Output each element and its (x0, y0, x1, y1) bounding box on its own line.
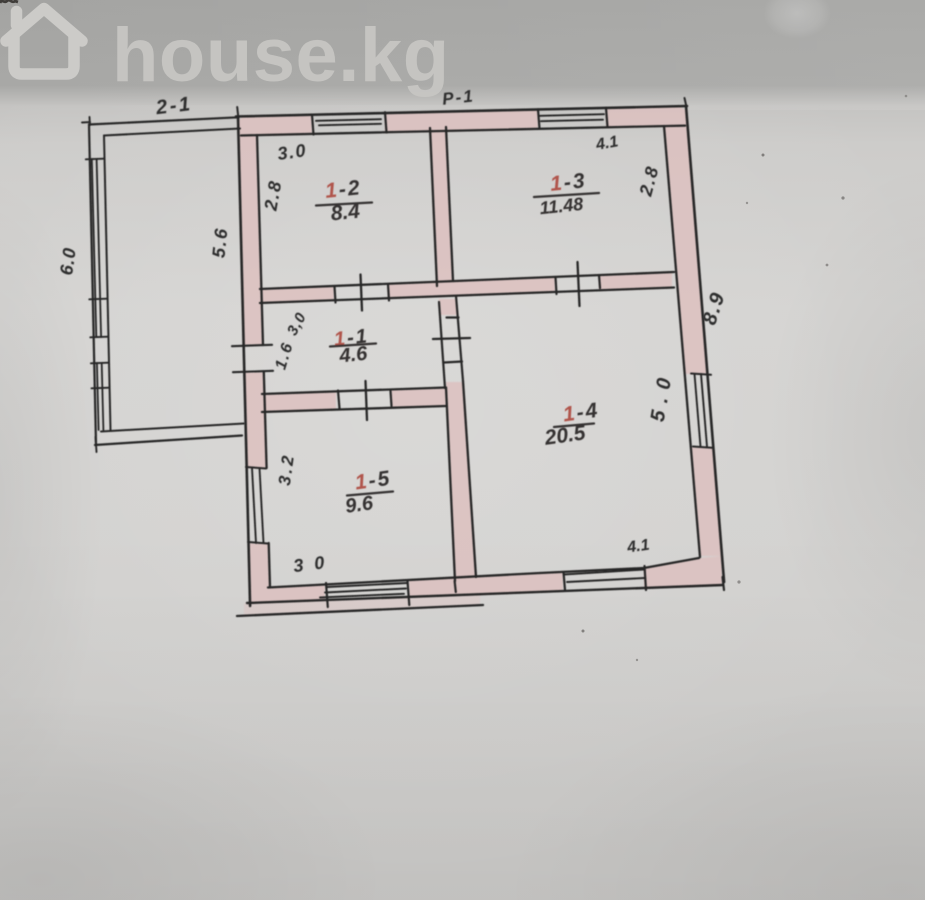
svg-text:1-3: 1-3 (549, 169, 588, 196)
svg-text:9.6: 9.6 (344, 492, 375, 518)
svg-text:P-1: P-1 (441, 86, 475, 108)
svg-text:house.kg: house.kg (112, 13, 450, 98)
svg-text:5.6: 5.6 (208, 226, 231, 259)
svg-text:4.6: 4.6 (337, 343, 369, 368)
svg-text:3 0: 3 0 (292, 552, 328, 576)
svg-text:2-1: 2-1 (154, 93, 194, 119)
svg-text:4.1: 4.1 (625, 537, 650, 557)
svg-text:6.0: 6.0 (56, 246, 80, 277)
svg-text:8.4: 8.4 (330, 200, 362, 226)
svg-text:3.0: 3.0 (276, 140, 308, 164)
